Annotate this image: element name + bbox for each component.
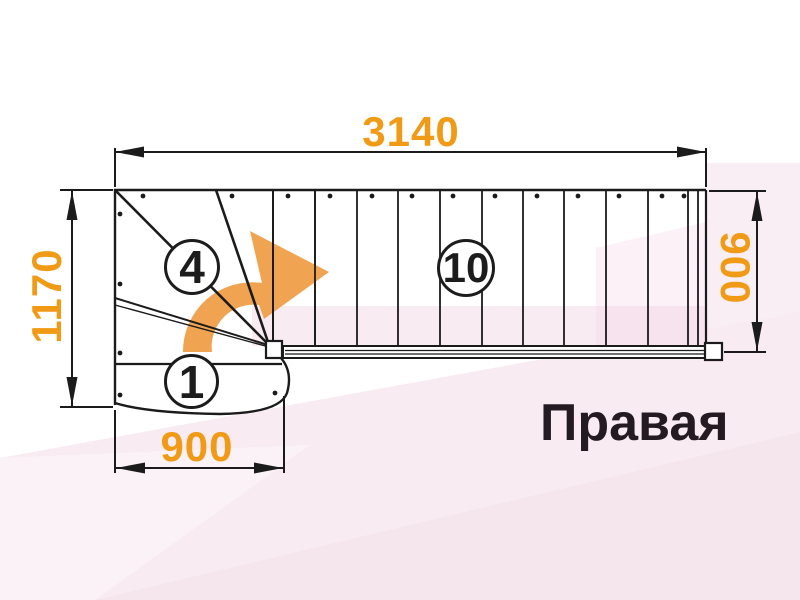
dimension-value-right: 900 — [714, 208, 756, 328]
stringer-band — [283, 346, 706, 358]
stair-plan-drawing — [0, 0, 800, 600]
stair-plan-screenshot: 3140 1170 900 900 4 1 10 Правая — [0, 0, 800, 600]
dimension-value-top: 3140 — [341, 111, 481, 153]
dimension-value-bottom: 900 — [137, 426, 257, 468]
step-number-badge-1: 1 — [164, 354, 219, 409]
step-number-badge-10: 10 — [437, 239, 495, 297]
orientation-label: Правая — [540, 397, 729, 449]
dimension-value-left: 1170 — [26, 216, 68, 376]
newel-post-top — [705, 343, 722, 360]
newel-post-corner — [266, 341, 282, 358]
step-number-badge-4: 4 — [164, 239, 220, 295]
